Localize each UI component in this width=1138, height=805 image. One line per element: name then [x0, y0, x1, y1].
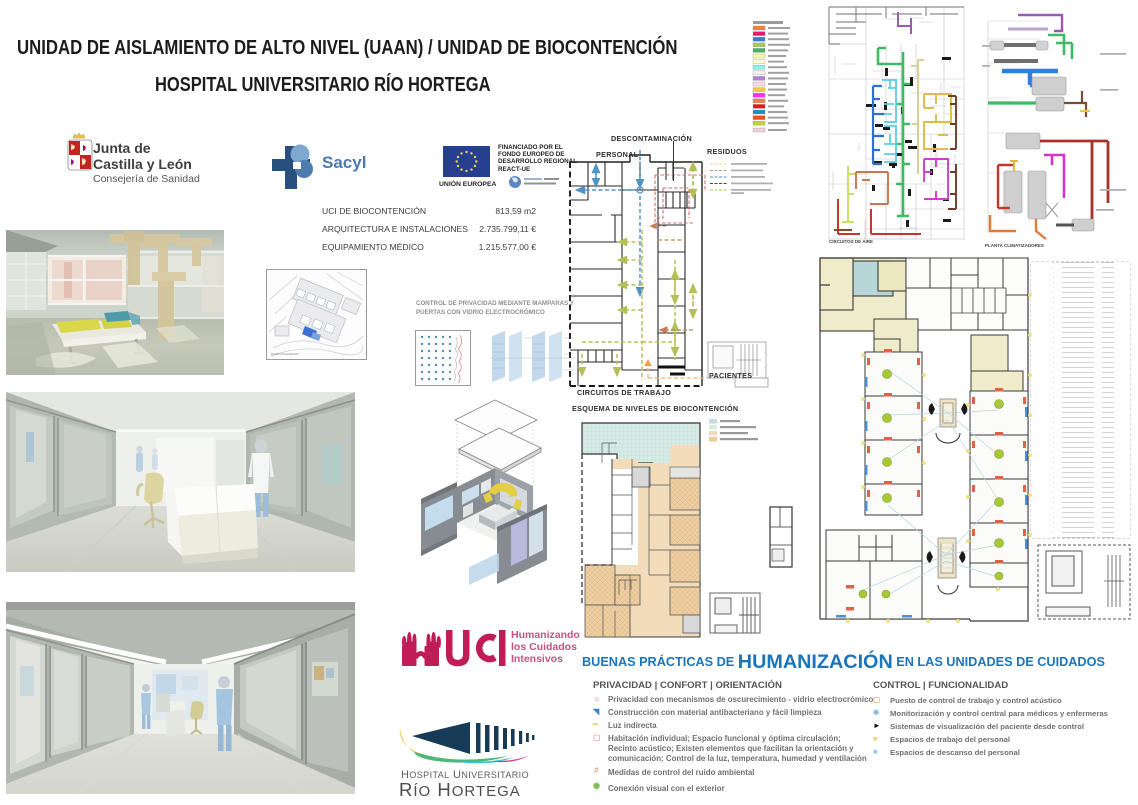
svg-text:los Cuidados: los Cuidados	[511, 641, 577, 653]
svg-text:HOSPITAL UNIVERSITARIO: HOSPITAL UNIVERSITARIO	[401, 769, 529, 781]
svg-text:Intensivos: Intensivos	[511, 653, 563, 665]
svg-text:RÍO HORTEGA: RÍO HORTEGA	[399, 779, 521, 800]
svg-text:PLANO LOCALIZACION: PLANO LOCALIZACION	[271, 353, 299, 356]
svg-text:Humanizando: Humanizando	[511, 629, 580, 641]
